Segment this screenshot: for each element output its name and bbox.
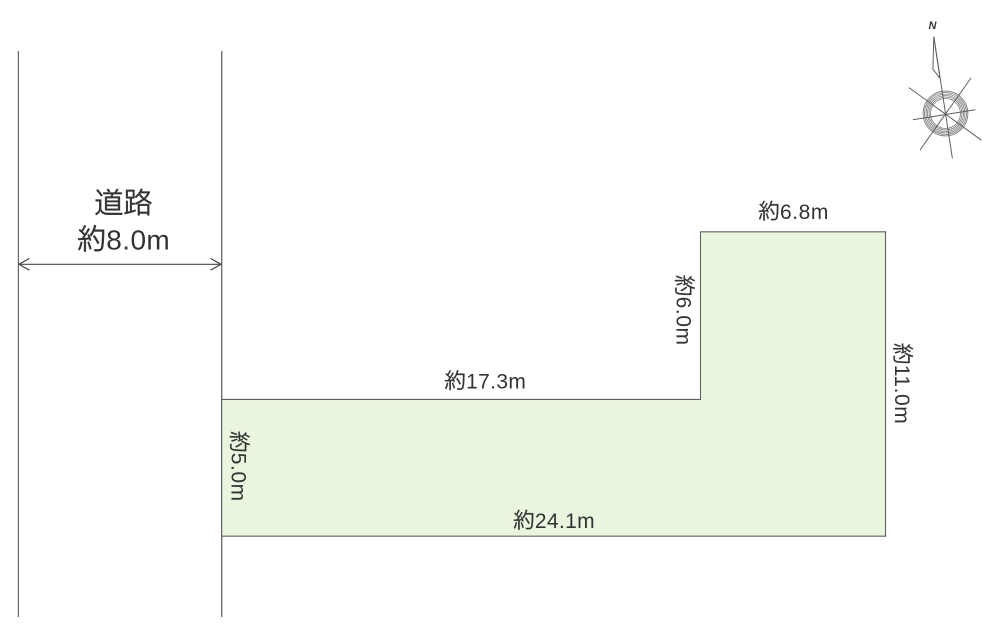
svg-text:24.1m: 24.1m [535,510,595,533]
svg-text:5.0m: 5.0m [226,453,249,502]
svg-text:6.8m: 6.8m [780,201,829,224]
svg-text:11.0m: 11.0m [890,365,913,425]
svg-text:6.0m: 6.0m [672,297,695,346]
svg-text:8.0m: 8.0m [106,225,170,256]
svg-text:17.3m: 17.3m [466,371,526,394]
svg-text:N: N [929,20,938,32]
